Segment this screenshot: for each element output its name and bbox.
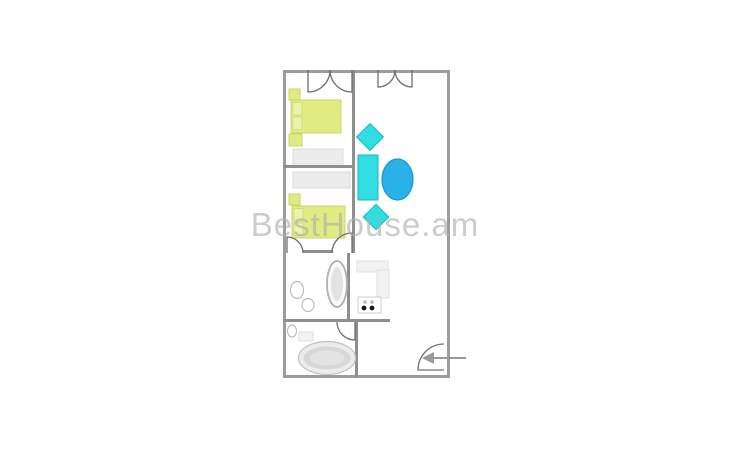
bedroom-divider-wall bbox=[283, 165, 355, 168]
bathroom-door bbox=[337, 322, 355, 340]
pillow bbox=[293, 117, 302, 130]
pillow bbox=[294, 209, 303, 222]
armchair bbox=[363, 204, 388, 229]
armchair bbox=[357, 124, 384, 151]
floor-plan bbox=[283, 70, 450, 378]
bedroom2-south-wall bbox=[303, 250, 333, 253]
living-divider-wall bbox=[352, 70, 355, 253]
boiler-inner bbox=[331, 267, 343, 301]
floorplan-image: BestHouse.am bbox=[0, 0, 730, 450]
burner bbox=[370, 300, 374, 304]
wardrobe bbox=[293, 149, 343, 164]
wardrobe bbox=[293, 172, 350, 188]
bedroom1-balcony-door-right bbox=[330, 70, 352, 92]
nightstand bbox=[289, 194, 300, 205]
floor-plan-svg bbox=[283, 70, 450, 378]
bath-sink bbox=[288, 325, 297, 337]
burner bbox=[363, 300, 367, 304]
nightstand bbox=[289, 89, 300, 100]
bedroom2-door-left bbox=[287, 237, 303, 253]
nightstand bbox=[289, 134, 302, 146]
table bbox=[382, 159, 413, 200]
bedroom1-balcony-door-left bbox=[308, 70, 330, 92]
stove bbox=[358, 297, 381, 313]
burner bbox=[362, 306, 367, 311]
kitchen-counter bbox=[377, 270, 389, 298]
bath-cabinet bbox=[299, 332, 313, 341]
toilet bbox=[302, 299, 314, 312]
sofa bbox=[358, 155, 378, 200]
pillow bbox=[294, 223, 303, 236]
bathtub-basin bbox=[310, 351, 345, 366]
sink bbox=[291, 282, 304, 299]
wc-south-wall bbox=[283, 319, 390, 322]
burner bbox=[370, 306, 375, 311]
pillow bbox=[293, 103, 302, 116]
